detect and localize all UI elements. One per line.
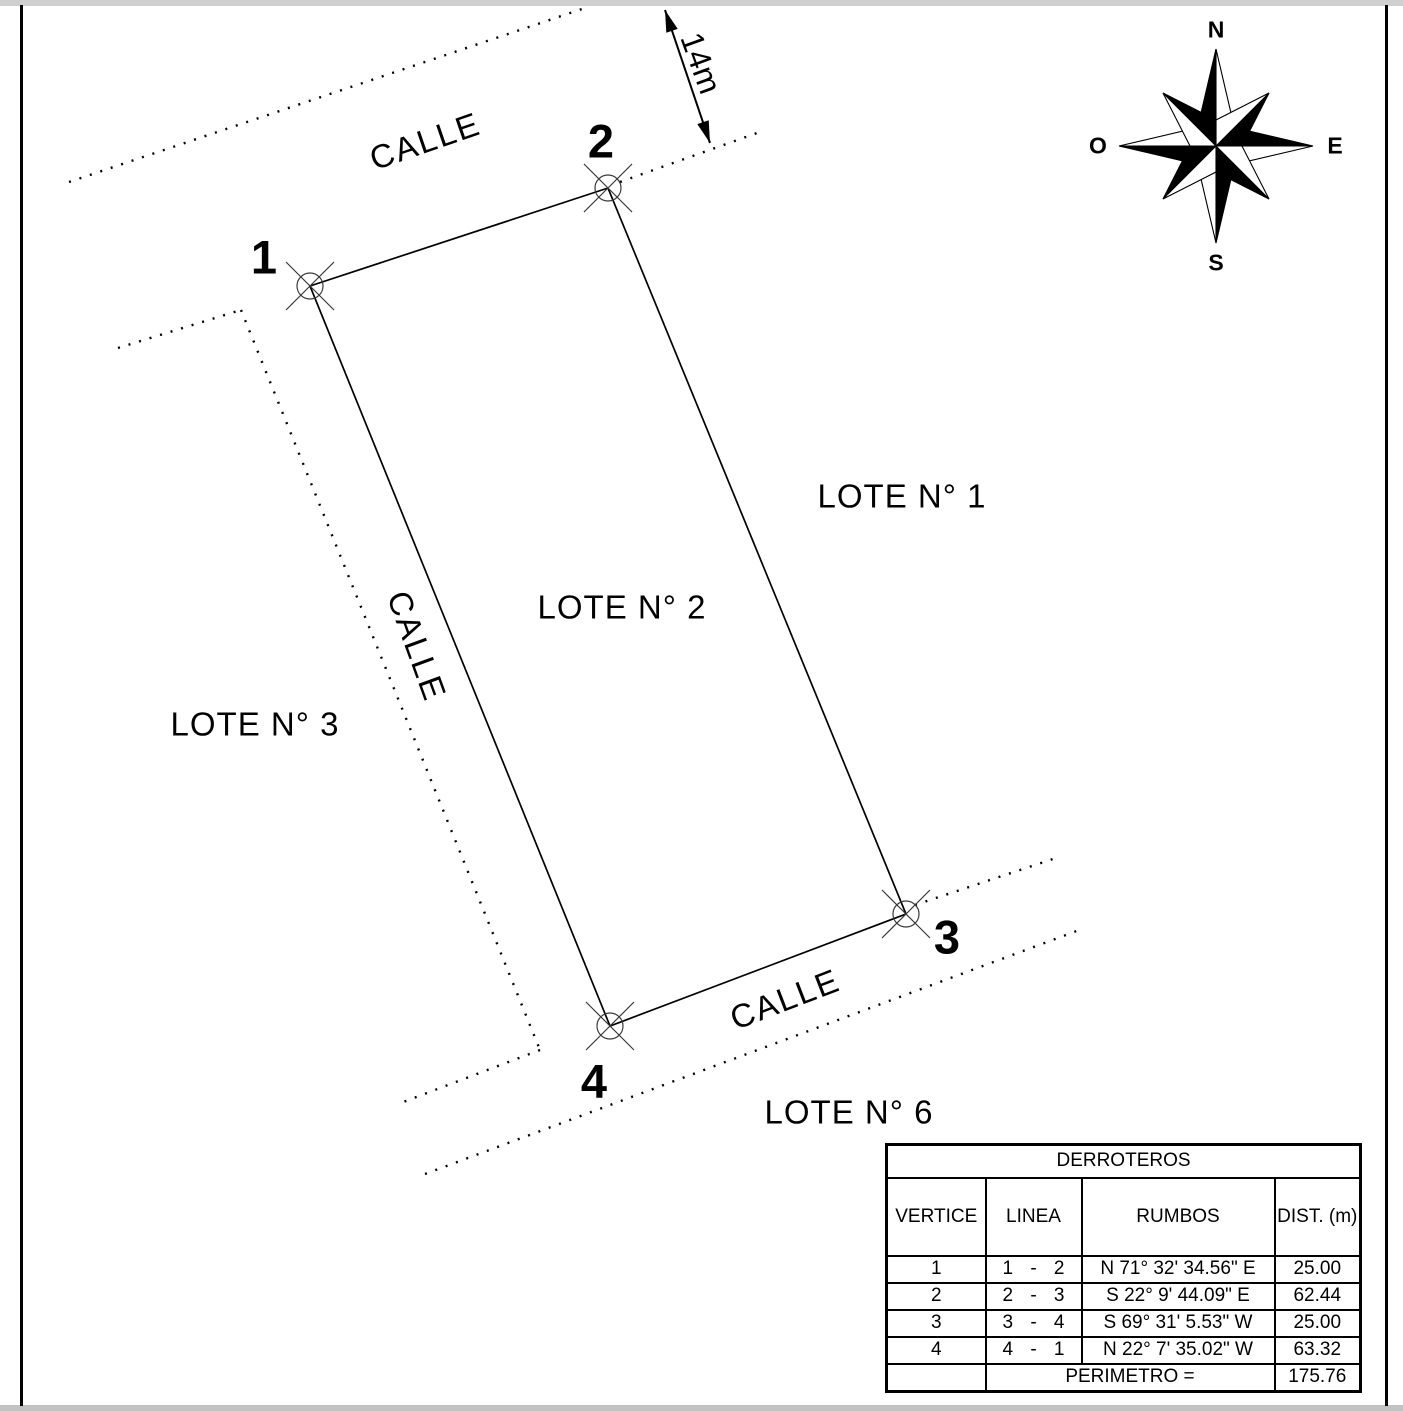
cell-rumbo: N 71° 32' 34.56" E [1082, 1256, 1275, 1283]
vertex-marker-icon [584, 164, 632, 212]
cell-vertice: 2 [887, 1283, 986, 1310]
dotted-block3-top-edge [118, 310, 241, 348]
perimeter-label: PERIMETRO = [986, 1364, 1275, 1392]
linea-to: 2 [1054, 1258, 1065, 1280]
linea-separator: - [1030, 1258, 1036, 1280]
derroteros-table: DERROTEROS VERTICE LINEA RUMBOS DIST. (m… [885, 1143, 1362, 1393]
lot-label-2: LOTE N° 2 [538, 591, 707, 624]
cell-dist: 25.00 [1275, 1310, 1361, 1337]
vertex-marker-icon [286, 262, 334, 310]
cell-linea: 1 - 2 [986, 1256, 1082, 1283]
table-row: 4 4 - 1 N 22° 7' 35.02" W 63.32 [887, 1337, 1361, 1364]
dotted-bottom-street-near-edge [915, 858, 1056, 905]
table-row: 2 2 - 3 S 22° 9' 44.09" E 62.44 [887, 1283, 1361, 1310]
lot-label-1: LOTE N° 1 [818, 480, 987, 513]
linea-to: 3 [1054, 1285, 1065, 1307]
vertex-label-2: 2 [588, 118, 614, 165]
vertex-label-3: 3 [934, 914, 960, 961]
compass-north-label: N [1208, 19, 1225, 42]
lot-label-6: LOTE N° 6 [765, 1096, 934, 1129]
cell-linea: 3 - 4 [986, 1310, 1082, 1337]
compass-west-label: O [1089, 135, 1107, 158]
compass-east-label: E [1327, 135, 1342, 158]
vertex-label-4: 4 [581, 1058, 607, 1105]
table-title: DERROTEROS [887, 1145, 1361, 1178]
col-header-dist: DIST. (m) [1275, 1178, 1361, 1256]
table-row: 1 1 - 2 N 71° 32' 34.56" E 25.00 [887, 1256, 1361, 1283]
vertex-label-1: 1 [251, 234, 277, 281]
compass-rose-icon [1119, 49, 1313, 243]
linea-to: 1 [1054, 1339, 1065, 1361]
linea-separator: - [1030, 1339, 1036, 1361]
cell-rumbo: N 22° 7' 35.02" W [1082, 1337, 1275, 1364]
cell-vertice: 4 [887, 1337, 986, 1364]
dotted-top-street-far-edge [69, 7, 588, 182]
compass-south-label: S [1208, 252, 1223, 275]
linea-from: 2 [1003, 1285, 1014, 1307]
cell-linea: 2 - 3 [986, 1283, 1082, 1310]
survey-plan-page: { "plan": { "streets": { "top": "CALLE",… [0, 0, 1403, 1411]
linea-separator: - [1030, 1312, 1036, 1334]
cell-dist: 63.32 [1275, 1337, 1361, 1364]
col-header-linea: LINEA [986, 1178, 1082, 1256]
linea-from: 4 [1003, 1339, 1014, 1361]
linea-from: 1 [1003, 1258, 1014, 1280]
perimeter-value: 175.76 [1275, 1364, 1361, 1392]
lot-label-3: LOTE N° 3 [171, 708, 340, 741]
cell-vertice: 3 [887, 1310, 986, 1337]
col-header-vertice: VERTICE [887, 1178, 986, 1256]
cell-linea: 4 - 1 [986, 1337, 1082, 1364]
cell-dist: 25.00 [1275, 1256, 1361, 1283]
linea-to: 4 [1054, 1312, 1065, 1334]
vertex-marker-icon [882, 890, 930, 938]
dotted-top-street-near-edge [620, 133, 757, 182]
linea-from: 3 [1003, 1312, 1014, 1334]
cell-rumbo: S 22° 9' 44.09" E [1082, 1283, 1275, 1310]
vertex-marker-icon [586, 1002, 634, 1050]
dotted-block3-right-edge [241, 310, 540, 1050]
cell-dist: 62.44 [1275, 1283, 1361, 1310]
table-row: 3 3 - 4 S 69° 31' 5.53" W 25.00 [887, 1310, 1361, 1337]
linea-separator: - [1030, 1285, 1036, 1307]
footer-empty-cell [887, 1364, 986, 1392]
col-header-rumbos: RUMBOS [1082, 1178, 1275, 1256]
cell-rumbo: S 69° 31' 5.53" W [1082, 1310, 1275, 1337]
cell-vertice: 1 [887, 1256, 986, 1283]
dotted-block3-bottom-edge [398, 1050, 540, 1104]
dotted-bottom-street-far-edge [425, 929, 1082, 1174]
